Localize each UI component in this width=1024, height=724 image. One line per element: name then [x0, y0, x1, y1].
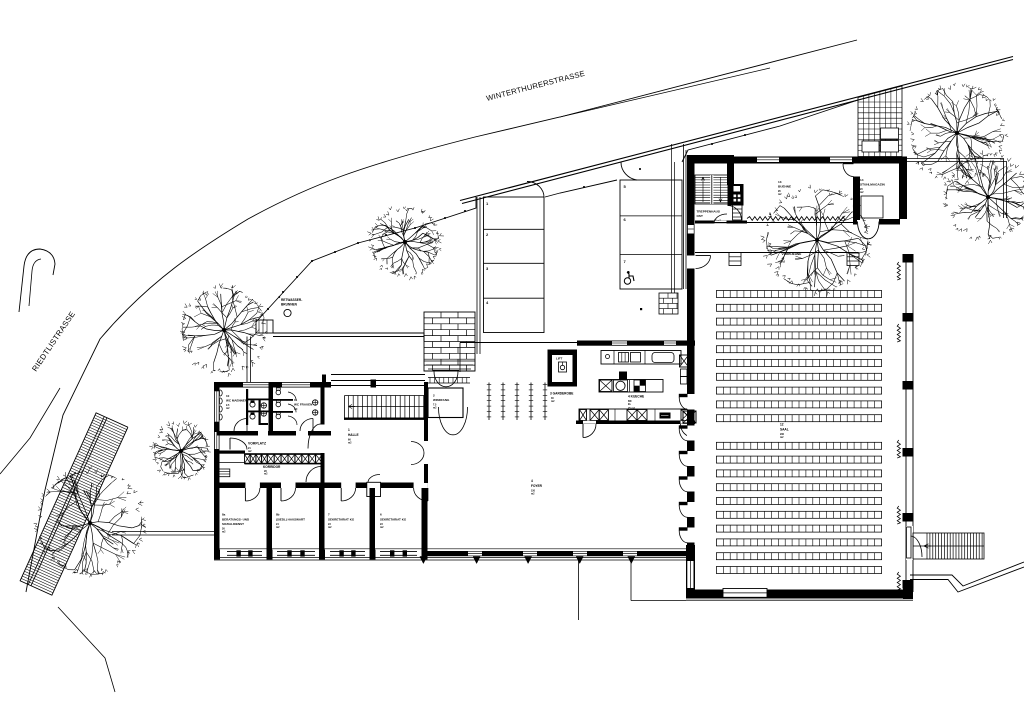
svg-text:10: 10	[226, 394, 230, 398]
svg-text:SOZIALDIENST: SOZIALDIENST	[222, 522, 244, 526]
svg-text:KORRIDOR: KORRIDOR	[263, 465, 281, 469]
svg-text:STUHLMAGAZIN: STUHLMAGAZIN	[860, 183, 886, 187]
svg-text:BERATUNGS- UND: BERATUNGS- UND	[222, 518, 250, 522]
svg-text:8a: 8a	[222, 513, 226, 517]
svg-text:4: 4	[531, 479, 533, 483]
svg-text:VORBUEHNE: VORBUEHNE	[782, 252, 802, 256]
svg-text:BUEHNE: BUEHNE	[778, 185, 791, 189]
svg-text:25 m2: 25 m2	[628, 407, 635, 410]
svg-text:BRUNNEN: BRUNNEN	[281, 303, 298, 307]
svg-text:WINDFANG: WINDFANG	[433, 398, 450, 402]
svg-text:(SIEDL) HAUSWART: (SIEDL) HAUSWART	[276, 518, 305, 522]
svg-text:11: 11	[294, 398, 298, 402]
svg-text:3 GARDEROBE: 3 GARDEROBE	[550, 392, 573, 396]
svg-text:OST: OST	[697, 214, 703, 218]
svg-text:LIFT: LIFT	[556, 357, 562, 361]
svg-text:WC MAENNER: WC MAENNER	[226, 399, 248, 403]
svg-text:13: 13	[778, 180, 782, 184]
svg-text:VORPLATZ: VORPLATZ	[248, 442, 266, 446]
svg-text:FOYER: FOYER	[531, 484, 543, 488]
svg-text:EL: EL	[628, 403, 632, 406]
svg-text:14: 14	[860, 178, 864, 182]
svg-text:TREPPENHAUS: TREPPENHAUS	[697, 210, 720, 214]
svg-text:8b: 8b	[276, 513, 280, 517]
svg-text:12: 12	[780, 423, 784, 427]
svg-text:SEKRETARIAT KG: SEKRETARIAT KG	[380, 518, 407, 522]
svg-text:4 KUECHE: 4 KUECHE	[628, 395, 644, 399]
svg-text:SAAL: SAAL	[780, 428, 789, 432]
svg-text:1: 1	[348, 428, 350, 432]
svg-text:HALLE: HALLE	[348, 433, 359, 437]
svg-text:SEKRETARIAT KG: SEKRETARIAT KG	[328, 518, 355, 522]
svg-text:RETWASSER-: RETWASSER-	[281, 298, 302, 302]
svg-text:WC FRAUEN: WC FRAUEN	[294, 403, 312, 407]
